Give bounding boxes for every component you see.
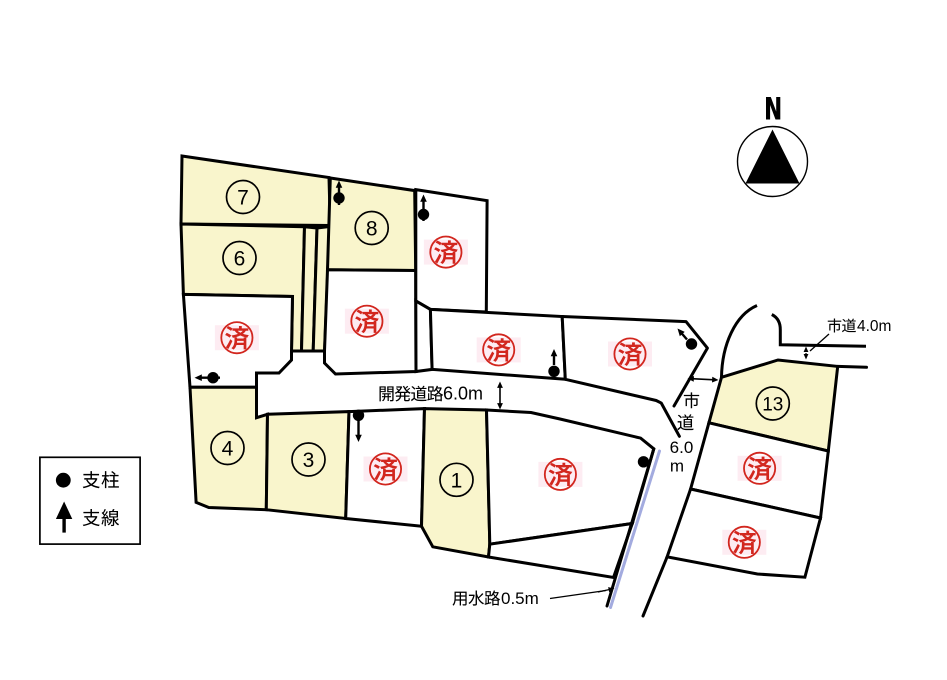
svg-text:4: 4 — [222, 438, 234, 461]
svg-text:6.0: 6.0 — [670, 438, 694, 457]
svg-text:3: 3 — [303, 449, 315, 472]
svg-text:8: 8 — [366, 218, 378, 241]
svg-text:0.5m: 0.5m — [501, 589, 539, 608]
svg-text:4.0m: 4.0m — [857, 318, 891, 335]
svg-text:7: 7 — [237, 187, 249, 210]
svg-text:m: m — [670, 457, 684, 476]
svg-text:1: 1 — [451, 469, 463, 492]
svg-text:6.0m: 6.0m — [443, 384, 483, 404]
svg-text:6: 6 — [234, 248, 246, 271]
svg-text:13: 13 — [762, 394, 783, 415]
